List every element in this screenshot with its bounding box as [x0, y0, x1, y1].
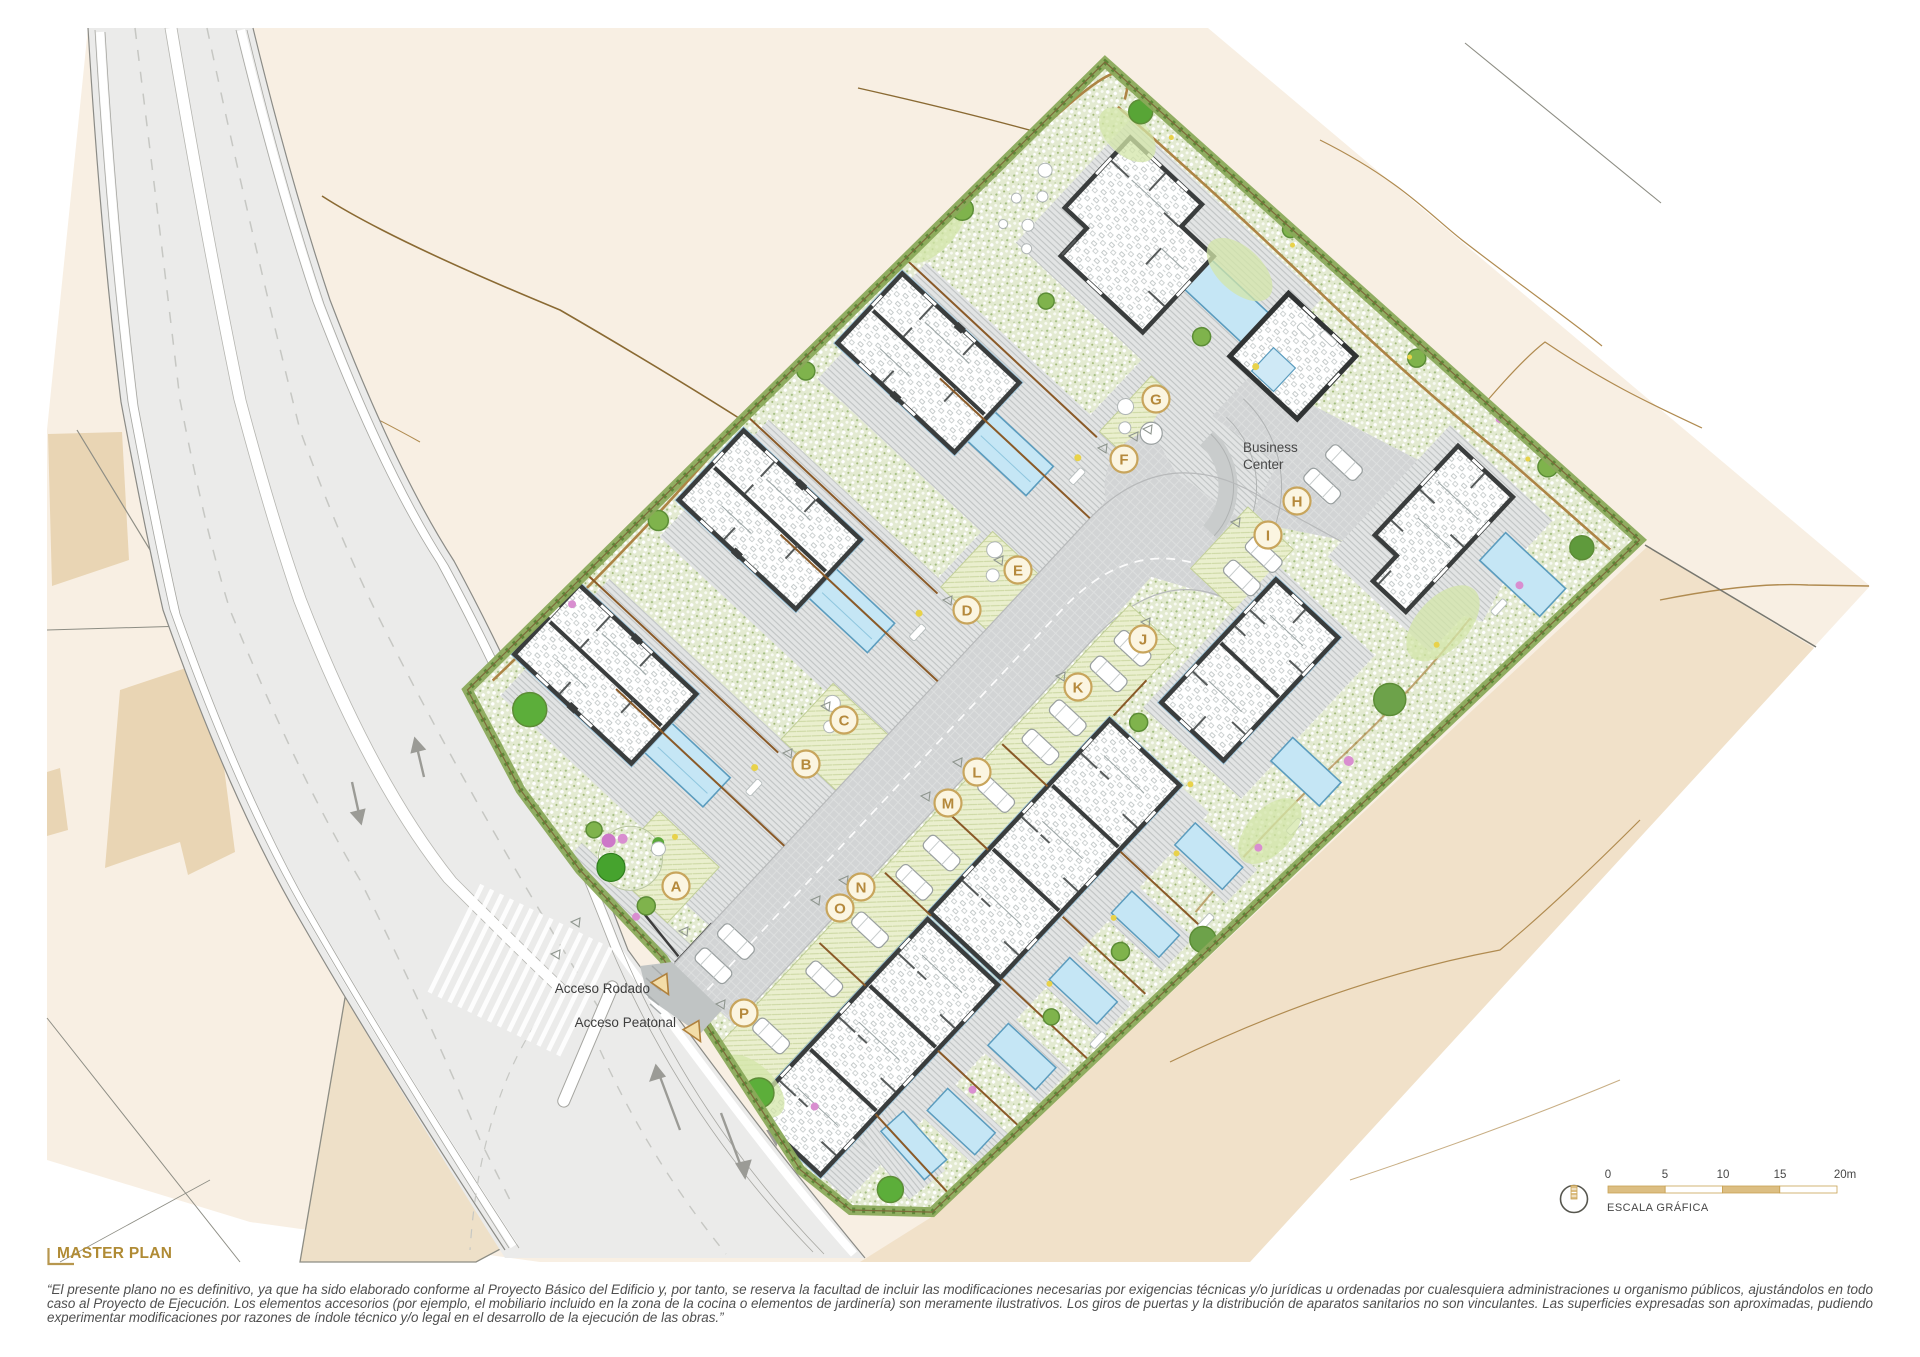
- svg-text:H: H: [1292, 493, 1303, 510]
- svg-text:E: E: [1013, 562, 1023, 579]
- svg-text:5: 5: [1662, 1169, 1668, 1181]
- svg-text:0: 0: [1605, 1169, 1611, 1181]
- svg-text:experimentar modificaciones po: experimentar modificaciones por razones …: [47, 1310, 724, 1325]
- svg-text:C: C: [839, 712, 850, 729]
- svg-text:F: F: [1119, 451, 1128, 468]
- svg-text:Acceso Rodado: Acceso Rodado: [555, 981, 650, 996]
- svg-text:J: J: [1139, 631, 1147, 648]
- svg-text:Business: Business: [1243, 440, 1298, 455]
- svg-text:A: A: [671, 878, 682, 895]
- svg-text:D: D: [962, 602, 973, 619]
- svg-text:P: P: [739, 1005, 749, 1022]
- svg-text:ESCALA GRÁFICA: ESCALA GRÁFICA: [1607, 1201, 1709, 1214]
- svg-text:10: 10: [1717, 1169, 1730, 1181]
- svg-text:Acceso Peatonal: Acceso Peatonal: [575, 1015, 676, 1030]
- svg-text:B: B: [801, 756, 812, 773]
- svg-text:15: 15: [1774, 1169, 1787, 1181]
- svg-text:N: N: [856, 879, 867, 896]
- svg-text:I: I: [1266, 527, 1270, 544]
- svg-text:O: O: [834, 900, 846, 917]
- svg-text:K: K: [1073, 679, 1084, 696]
- svg-text:20m: 20m: [1834, 1169, 1856, 1181]
- svg-text:Center: Center: [1243, 457, 1284, 472]
- svg-text:M: M: [942, 795, 955, 812]
- svg-text:caso al Proyecto de Ejecución.: caso al Proyecto de Ejecución. Los eleme…: [47, 1296, 1874, 1311]
- svg-text:G: G: [1150, 391, 1162, 408]
- svg-text:L: L: [972, 764, 981, 781]
- svg-text:MASTER PLAN: MASTER PLAN: [57, 1245, 172, 1262]
- svg-text:“El presente plano no es defin: “El presente plano no es definitivo, ya …: [47, 1282, 1874, 1297]
